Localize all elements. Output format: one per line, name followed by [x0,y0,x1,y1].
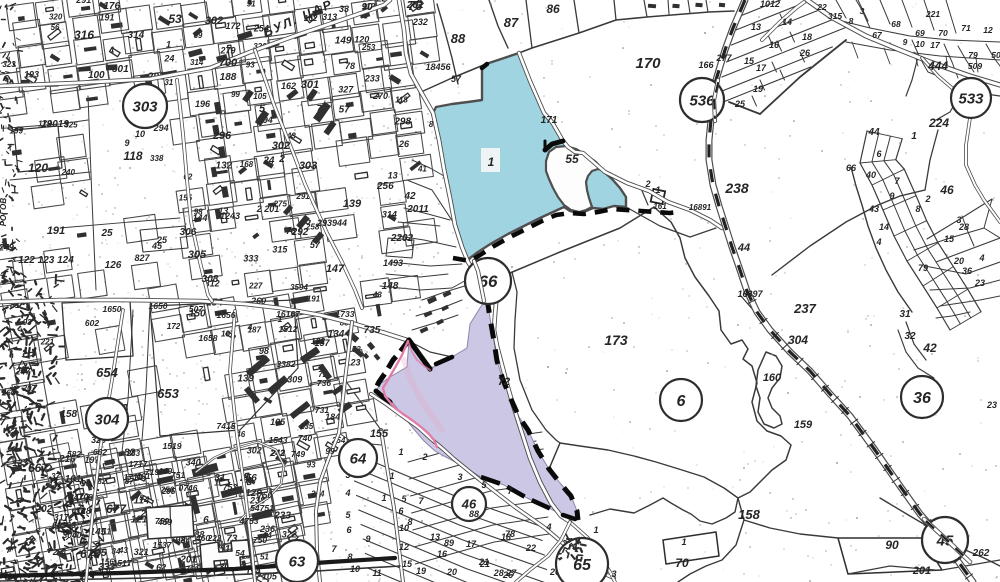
svg-text:118: 118 [123,149,142,163]
svg-text:233: 233 [273,510,291,521]
svg-text:256: 256 [376,181,394,192]
svg-text:302: 302 [205,15,223,27]
svg-text:338: 338 [150,154,164,163]
svg-text:304: 304 [788,333,808,347]
svg-text:582: 582 [67,449,81,459]
svg-text:237: 237 [793,301,816,316]
svg-text:224: 224 [928,116,949,130]
svg-text:12: 12 [983,25,993,35]
svg-text:43: 43 [868,204,879,214]
svg-text:296: 296 [212,130,232,142]
svg-text:144: 144 [192,213,207,223]
svg-text:2011: 2011 [406,204,429,215]
svg-text:134: 134 [328,329,345,340]
svg-text:20: 20 [953,256,964,266]
svg-text:17: 17 [466,539,477,549]
svg-text:24: 24 [262,156,275,167]
svg-text:120: 120 [28,161,48,175]
svg-text:40: 40 [865,170,876,180]
svg-text:444: 444 [927,59,948,73]
svg-text:76: 76 [408,0,423,13]
svg-text:9: 9 [365,534,370,544]
svg-text:9: 9 [124,138,129,148]
svg-text:171: 171 [541,115,558,126]
svg-text:227: 227 [248,282,263,291]
svg-text:99: 99 [231,90,240,99]
svg-text:158: 158 [60,409,77,420]
svg-text:188: 188 [220,72,237,83]
svg-text:44: 44 [737,242,750,254]
svg-text:3: 3 [611,569,616,579]
svg-text:9: 9 [889,191,894,201]
svg-text:10: 10 [915,39,925,49]
svg-text:10: 10 [350,564,360,574]
svg-text:662: 662 [93,447,107,457]
svg-text:4: 4 [978,253,984,263]
svg-text:72: 72 [498,376,510,388]
svg-text:196: 196 [195,99,211,109]
svg-text:13: 13 [430,532,440,542]
svg-text:507: 507 [189,304,204,314]
svg-text:6: 6 [876,149,882,159]
svg-text:57: 57 [339,104,351,115]
svg-text:12: 12 [399,542,409,552]
svg-text:1: 1 [398,447,403,457]
svg-text:63: 63 [289,553,306,570]
svg-text:135: 135 [300,422,314,431]
svg-text:172: 172 [225,21,240,31]
svg-text:4: 4 [344,488,350,498]
svg-text:84: 84 [181,537,190,546]
svg-text:170: 170 [635,55,661,72]
svg-text:3382: 3382 [277,359,296,369]
svg-text:1: 1 [381,493,386,503]
svg-text:99: 99 [325,446,335,456]
svg-text:69: 69 [193,31,202,40]
svg-text:16891: 16891 [689,203,712,212]
svg-text:536: 536 [689,92,715,109]
svg-text:70: 70 [938,28,948,38]
svg-text:751: 751 [171,470,185,480]
svg-text:509: 509 [968,61,982,71]
svg-text:46: 46 [939,183,954,197]
svg-text:20: 20 [446,567,457,577]
svg-text:316: 316 [74,28,94,42]
svg-text:23: 23 [974,278,985,288]
svg-text:25: 25 [100,228,113,239]
svg-text:44: 44 [867,127,880,138]
svg-text:147: 147 [326,263,345,275]
svg-text:292: 292 [291,227,309,238]
svg-text:69363: 69363 [52,520,76,530]
svg-text:4: 4 [545,522,551,532]
svg-text:3: 3 [457,472,462,482]
svg-text:139: 139 [343,198,362,210]
svg-text:270: 270 [372,91,388,101]
svg-text:91: 91 [247,0,256,9]
svg-text:740: 740 [298,433,312,443]
svg-text:4: 4 [247,322,253,332]
svg-text:5: 5 [259,103,266,115]
svg-text:67: 67 [872,30,883,40]
svg-text:33: 33 [339,4,349,14]
svg-text:1512: 1512 [279,324,298,334]
svg-text:1: 1 [488,155,495,169]
svg-text:56: 56 [51,23,60,32]
svg-text:320: 320 [49,12,63,21]
svg-text:232: 232 [412,17,428,27]
svg-text:460: 460 [195,533,210,543]
svg-text:700: 700 [219,57,238,69]
svg-text:2 201: 2 201 [256,204,280,214]
svg-text:32: 32 [904,331,916,342]
svg-text:750: 750 [253,535,267,545]
svg-text:78: 78 [505,529,515,539]
svg-text:25: 25 [734,99,746,109]
svg-text:РОГОВ: РОГОВ [0,198,8,227]
svg-text:304: 304 [94,411,120,428]
svg-text:1656: 1656 [217,310,236,320]
svg-text:2202: 2202 [390,233,414,244]
svg-text:54751: 54751 [250,503,274,513]
svg-text:26: 26 [398,139,410,149]
svg-text:654: 654 [96,365,118,380]
svg-text:238: 238 [724,180,749,196]
svg-text:1: 1 [681,537,686,547]
svg-text:166: 166 [698,60,714,70]
svg-text:21: 21 [478,557,489,567]
svg-text:750: 750 [258,490,272,500]
svg-text:653: 653 [157,386,179,401]
svg-text:23: 23 [986,400,997,410]
svg-text:17: 17 [930,40,941,50]
svg-text:677: 677 [106,502,127,516]
svg-text:8: 8 [915,204,920,214]
svg-text:315: 315 [828,11,842,21]
svg-text:158: 158 [738,507,760,522]
svg-text:162: 162 [281,81,296,91]
svg-text:314: 314 [128,30,145,41]
svg-text:159: 159 [794,419,813,431]
svg-text:82: 82 [97,477,106,486]
svg-text:1: 1 [655,185,660,195]
svg-text:1537: 1537 [153,540,173,550]
svg-text:8: 8 [429,120,434,129]
svg-text:22: 22 [816,2,827,12]
svg-text:1517: 1517 [113,558,133,568]
svg-text:1650: 1650 [103,304,122,314]
svg-text:93: 93 [307,460,316,469]
svg-text:79: 79 [918,263,928,273]
svg-text:667: 667 [28,461,49,475]
svg-text:78: 78 [345,61,355,71]
svg-text:90: 90 [361,2,373,13]
svg-text:221: 221 [40,337,55,346]
svg-text:42: 42 [922,341,937,355]
svg-text:753: 753 [223,482,237,492]
svg-text:13: 13 [388,171,398,181]
svg-text:41: 41 [417,165,427,174]
svg-text:315: 315 [272,245,288,255]
svg-text:54: 54 [235,548,245,558]
svg-text:7: 7 [894,176,900,186]
svg-text:36: 36 [962,266,973,276]
svg-text:678: 678 [80,547,100,561]
svg-text:64: 64 [350,450,367,467]
svg-text:735: 735 [364,325,381,336]
svg-text:16397: 16397 [737,289,763,299]
svg-text:0746: 0746 [179,483,198,493]
svg-text:459: 459 [157,517,172,527]
svg-text:19019: 19019 [41,119,69,130]
svg-text:291: 291 [75,0,91,5]
svg-text:314: 314 [190,58,204,67]
svg-text:233: 233 [364,73,380,83]
svg-text:2: 2 [278,154,285,165]
svg-text:88: 88 [469,509,479,519]
svg-text:1: 1 [911,131,917,142]
svg-text:340: 340 [186,458,201,468]
svg-text:15: 15 [402,559,413,569]
svg-text:160: 160 [763,372,782,384]
svg-text:26: 26 [799,48,811,58]
svg-text:53: 53 [168,12,182,26]
svg-text:42: 42 [403,191,416,202]
svg-text:309: 309 [287,374,302,384]
svg-text:31: 31 [899,309,911,320]
svg-text:736: 736 [317,378,331,388]
svg-text:10: 10 [399,523,409,533]
svg-text:24: 24 [163,53,174,63]
svg-text:161: 161 [653,202,667,211]
svg-text:3594: 3594 [290,283,308,292]
svg-text:314: 314 [382,210,397,220]
svg-text:57: 57 [451,74,462,84]
svg-text:308: 308 [202,274,219,285]
svg-text:6: 6 [398,506,404,516]
svg-text:45: 45 [151,241,163,251]
svg-text:1519: 1519 [163,441,182,451]
svg-text:303: 303 [299,160,317,172]
svg-text:306: 306 [180,227,197,238]
svg-text:168: 168 [240,160,254,169]
svg-text:19: 19 [416,566,426,576]
svg-text:93: 93 [246,61,255,70]
svg-text:6: 6 [677,393,686,410]
svg-text:1: 1 [593,525,598,535]
svg-text:761: 761 [185,564,199,574]
svg-text:86: 86 [546,2,560,16]
svg-text:88: 88 [451,31,466,46]
svg-text:36: 36 [913,390,931,407]
svg-text:1733: 1733 [336,309,355,319]
svg-text:87: 87 [504,15,519,30]
svg-text:298: 298 [393,116,411,127]
svg-text:14: 14 [879,222,889,232]
svg-text:114: 114 [134,495,150,506]
svg-text:533: 533 [958,90,984,107]
svg-text:16: 16 [769,40,780,50]
svg-text:7: 7 [418,496,424,506]
svg-text:749: 749 [291,449,305,459]
svg-text:262: 262 [972,548,990,559]
svg-text:69: 69 [915,28,925,38]
svg-text:602: 602 [85,318,99,328]
svg-text:126: 126 [105,260,122,271]
svg-text:322: 322 [282,530,297,540]
svg-text:89: 89 [444,538,454,548]
svg-text:7415: 7415 [217,421,236,431]
svg-text:13: 13 [751,22,761,32]
svg-text:1: 1 [110,45,115,54]
svg-text:79: 79 [968,50,978,60]
svg-text:98: 98 [259,346,269,356]
svg-text:68: 68 [891,19,901,29]
svg-text:253: 253 [361,43,376,52]
svg-text:105: 105 [253,92,267,101]
svg-text:18: 18 [802,32,812,42]
svg-text:71: 71 [961,23,971,33]
svg-text:277: 277 [715,53,732,63]
svg-text:221: 221 [925,9,940,19]
svg-text:155: 155 [370,428,389,440]
svg-text:2: 2 [644,179,650,189]
svg-text:201: 201 [912,565,931,577]
svg-text:827: 827 [134,253,150,263]
svg-text:1543: 1543 [269,435,288,445]
svg-text:148: 148 [382,281,399,292]
svg-text:719: 719 [145,467,159,477]
svg-text:8: 8 [347,552,352,562]
svg-text:4753: 4753 [239,516,259,526]
svg-text:731: 731 [315,405,329,415]
svg-text:3040: 3040 [63,530,82,540]
svg-text:31: 31 [164,78,173,87]
svg-text:1650: 1650 [149,301,168,311]
svg-text:28: 28 [958,222,969,232]
svg-text:7: 7 [331,544,337,554]
svg-text:301: 301 [301,79,319,91]
svg-text:295: 295 [161,487,176,496]
svg-text:193: 193 [24,70,39,80]
svg-text:172: 172 [167,322,181,331]
svg-text:149: 149 [335,36,352,47]
svg-text:4: 4 [875,237,881,247]
svg-text:191: 191 [99,12,114,22]
svg-text:132: 132 [311,336,325,346]
svg-text:15: 15 [944,234,955,244]
svg-text:84708: 84708 [69,492,93,502]
svg-text:118: 118 [395,96,408,105]
svg-text:1718: 1718 [124,472,143,482]
svg-text:19: 19 [753,84,763,94]
svg-text:122 123 124: 122 123 124 [18,255,74,266]
svg-text:333: 333 [243,253,258,263]
svg-text:9: 9 [903,37,908,47]
svg-text:283: 283 [126,449,141,458]
svg-text:14: 14 [782,17,792,27]
svg-text:240: 240 [61,168,76,177]
svg-text:2: 2 [421,452,427,462]
svg-text:1493: 1493 [383,258,403,268]
svg-text:17: 17 [756,63,767,73]
svg-text:327: 327 [338,85,354,95]
svg-text:55: 55 [565,152,579,166]
svg-text:303: 303 [132,98,158,115]
svg-text:1: 1 [389,471,394,481]
svg-text:191: 191 [47,225,65,237]
svg-text:70: 70 [675,556,689,570]
svg-text:43: 43 [118,546,128,555]
svg-text:8: 8 [849,16,854,26]
svg-text:305: 305 [188,249,207,261]
svg-text:173: 173 [604,332,628,348]
svg-text:302: 302 [272,140,290,152]
svg-text:15: 15 [744,56,755,66]
svg-text:16167: 16167 [276,309,301,319]
svg-text:1012: 1012 [760,0,780,9]
svg-text:66: 66 [846,163,857,173]
svg-text:105: 105 [270,417,286,427]
svg-text:293944: 293944 [316,218,347,228]
svg-text:1658: 1658 [199,333,218,343]
svg-text:16: 16 [437,549,448,559]
svg-text:28 27: 28 27 [493,568,518,578]
svg-text:1243: 1243 [220,211,240,221]
svg-text:18456: 18456 [425,62,451,72]
svg-text:3: 3 [860,6,865,16]
svg-text:50: 50 [991,50,1000,60]
svg-text:279: 279 [220,45,236,55]
svg-text:2: 2 [924,194,930,204]
svg-text:10: 10 [135,129,145,139]
svg-text:6: 6 [346,525,352,535]
svg-text:90: 90 [885,538,899,552]
svg-text:11: 11 [372,568,381,578]
svg-text:22: 22 [525,543,536,553]
